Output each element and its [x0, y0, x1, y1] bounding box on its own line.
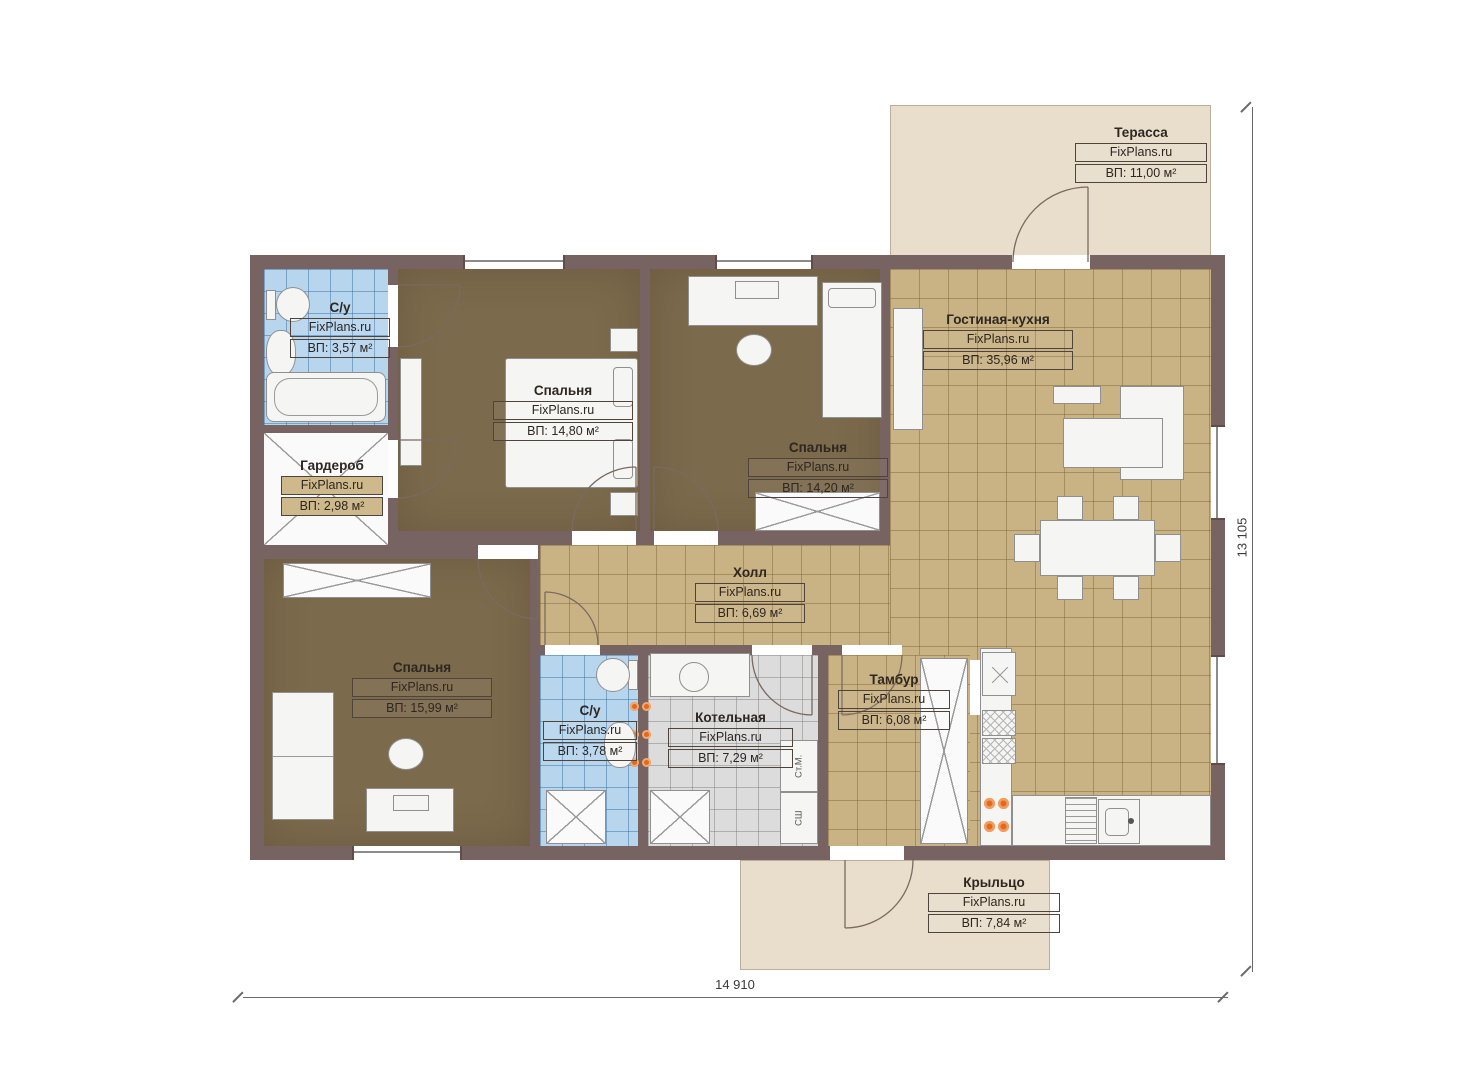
brand-watermark: FixPlans.ru	[928, 893, 1060, 912]
window-living-1	[1211, 425, 1225, 520]
tambour-door-opening	[842, 645, 902, 655]
toilet-2-bowl	[596, 658, 630, 692]
wardrobe-room-door-opening	[388, 440, 398, 498]
window-bedroom-1	[463, 255, 565, 269]
room-name: Тамбур	[838, 672, 950, 688]
room-label-bathroom-1: С/у FixPlans.ru ВП: 3,57 м²	[290, 300, 390, 358]
room-area: ВП: 14,20 м²	[748, 479, 888, 498]
room-area: ВП: 7,84 м²	[928, 914, 1060, 933]
brand-watermark: FixPlans.ru	[668, 728, 793, 747]
sink-faucet-icon	[1128, 818, 1134, 824]
dining-chair-left	[1014, 534, 1040, 562]
entrance-door-opening	[830, 846, 904, 860]
shower-tray-bathroom-2	[546, 790, 606, 844]
boiler-counter	[650, 653, 750, 697]
dimension-height-label: 13 105	[1235, 508, 1250, 568]
nightstand-1a	[610, 328, 638, 352]
room-name: Гостиная-кухня	[923, 312, 1073, 328]
room-area: ВП: 11,00 м²	[1075, 164, 1207, 183]
room-name: Котельная	[668, 710, 793, 726]
stove	[982, 795, 1012, 845]
chair-bedroom-3	[388, 738, 424, 770]
brand-watermark: FixPlans.ru	[748, 458, 888, 477]
window-living-2	[1211, 655, 1225, 765]
room-label-bedroom-3: Спальня FixPlans.ru ВП: 15,99 м²	[352, 660, 492, 718]
dining-table	[1040, 520, 1155, 576]
dimension-tick	[1240, 102, 1251, 113]
cabinet-3-divider	[273, 756, 333, 757]
room-label-boiler-room: Котельная FixPlans.ru ВП: 7,29 м²	[668, 710, 793, 768]
dimension-line-bottom	[243, 997, 1228, 998]
room-area: ВП: 14,80 м²	[493, 422, 633, 441]
sofa-seat	[1063, 418, 1163, 468]
room-name: Гардероб	[281, 458, 383, 474]
room-label-porch: Крыльцо FixPlans.ru ВП: 7,84 м²	[928, 875, 1060, 933]
microwave-icon	[982, 738, 1016, 764]
room-area: ВП: 7,29 м²	[668, 749, 793, 768]
sink-basin	[1105, 808, 1129, 836]
dining-chair-top-2	[1113, 496, 1139, 520]
dining-chair-bottom-1	[1057, 576, 1083, 600]
cabinet-x-icon	[992, 667, 1008, 683]
terrace-door-opening	[1012, 255, 1090, 269]
side-table	[1053, 386, 1101, 404]
wardrobe-bedroom-1	[400, 358, 422, 466]
bathroom-2-door-opening	[545, 645, 600, 655]
brand-watermark: FixPlans.ru	[281, 476, 383, 495]
desk-3-device	[393, 795, 429, 811]
chair-bedroom-2	[736, 334, 772, 366]
room-area: ВП: 35,96 м²	[923, 351, 1073, 370]
desk-bedroom-3	[366, 788, 454, 832]
brand-watermark: FixPlans.ru	[838, 690, 950, 709]
bed-2-pillow	[828, 288, 876, 308]
room-area: ВП: 6,69 м²	[695, 604, 805, 623]
brand-watermark: FixPlans.ru	[695, 583, 805, 602]
room-area: ВП: 3,78 м²	[543, 742, 637, 761]
room-label-tambour: Тамбур FixPlans.ru ВП: 6,08 м²	[838, 672, 950, 730]
room-area: ВП: 3,57 м²	[290, 339, 390, 358]
brand-watermark: FixPlans.ru	[1075, 143, 1207, 162]
bedroom-1-door-opening	[572, 531, 636, 545]
room-area: ВП: 6,08 м²	[838, 711, 950, 730]
heater-dot-icon	[642, 730, 651, 739]
window-bedroom-3	[352, 846, 462, 860]
room-label-bathroom-2: С/у FixPlans.ru ВП: 3,78 м²	[543, 703, 637, 761]
room-label-bedroom-1: Спальня FixPlans.ru ВП: 14,80 м²	[493, 383, 633, 441]
bed-2	[822, 282, 882, 418]
dimension-line-right	[1252, 107, 1253, 972]
room-name: Спальня	[493, 383, 633, 399]
room-name: Терасса	[1075, 125, 1207, 141]
dimension-tick	[232, 992, 243, 1003]
heater-dot-icon	[642, 702, 651, 711]
room-name: Спальня	[352, 660, 492, 676]
desk-2-device	[735, 281, 779, 299]
brand-watermark: FixPlans.ru	[290, 318, 390, 337]
bathtub	[266, 372, 386, 422]
brand-watermark: FixPlans.ru	[493, 401, 633, 420]
dining-chair-top-1	[1057, 496, 1083, 520]
room-label-living-kitchen: Гостиная-кухня FixPlans.ru ВП: 35,96 м²	[923, 312, 1073, 370]
wardrobe-bedroom-3	[283, 563, 431, 598]
heater-dot-icon	[642, 758, 651, 767]
dishwasher	[1065, 797, 1097, 844]
nightstand-1b	[610, 492, 638, 516]
stove-burner-icon	[984, 798, 995, 809]
bedroom-2-door-opening	[654, 531, 718, 545]
floor-plan-canvas: Ст.М. СШ Терасса FixPlans.ru ВП: 11,00 м…	[0, 0, 1474, 1080]
room-name: Крыльцо	[928, 875, 1060, 891]
dimension-tick	[1240, 966, 1251, 977]
room-name: Спальня	[748, 440, 888, 456]
dimension-width-label: 14 910	[685, 977, 785, 992]
window-bedroom-2	[715, 255, 813, 269]
room-name: С/у	[290, 300, 390, 316]
room-name: С/у	[543, 703, 637, 719]
brand-watermark: FixPlans.ru	[543, 721, 637, 740]
desk-bedroom-2	[688, 276, 818, 326]
room-label-terrace: Терасса FixPlans.ru ВП: 11,00 м²	[1075, 125, 1207, 183]
bathtub-inner	[274, 378, 378, 416]
stove-burner-icon	[984, 821, 995, 832]
bedroom-3-door-opening	[478, 545, 538, 559]
dryer-label: СШ	[781, 793, 817, 843]
bed-1-pillow-bottom	[613, 439, 633, 479]
kitchen-sink	[1098, 799, 1140, 844]
cabinet-bedroom-3	[272, 692, 334, 820]
shower-tray-boiler	[650, 790, 710, 844]
brand-watermark: FixPlans.ru	[352, 678, 492, 697]
dining-chair-bottom-2	[1113, 576, 1139, 600]
room-label-hall: Холл FixPlans.ru ВП: 6,69 м²	[695, 565, 805, 623]
oven-icon	[982, 710, 1016, 736]
tambour-kitchen-opening	[970, 660, 980, 715]
dining-chair-right	[1155, 534, 1181, 562]
brand-watermark: FixPlans.ru	[923, 330, 1073, 349]
stove-burner-icon	[998, 821, 1009, 832]
room-label-wardrobe-room: Гардероб FixPlans.ru ВП: 2,98 м²	[281, 458, 383, 516]
room-name: Холл	[695, 565, 805, 581]
boiler-room-door-opening	[752, 645, 812, 655]
kitchen-cabinet	[982, 652, 1016, 696]
boiler-sink	[679, 662, 709, 692]
room-area: ВП: 15,99 м²	[352, 699, 492, 718]
room-area: ВП: 2,98 м²	[281, 497, 383, 516]
stove-burner-icon	[998, 798, 1009, 809]
tv-cabinet	[893, 308, 923, 430]
dryer: СШ	[780, 792, 818, 844]
toilet-1-tank	[266, 290, 276, 320]
room-label-bedroom-2: Спальня FixPlans.ru ВП: 14,20 м²	[748, 440, 888, 498]
